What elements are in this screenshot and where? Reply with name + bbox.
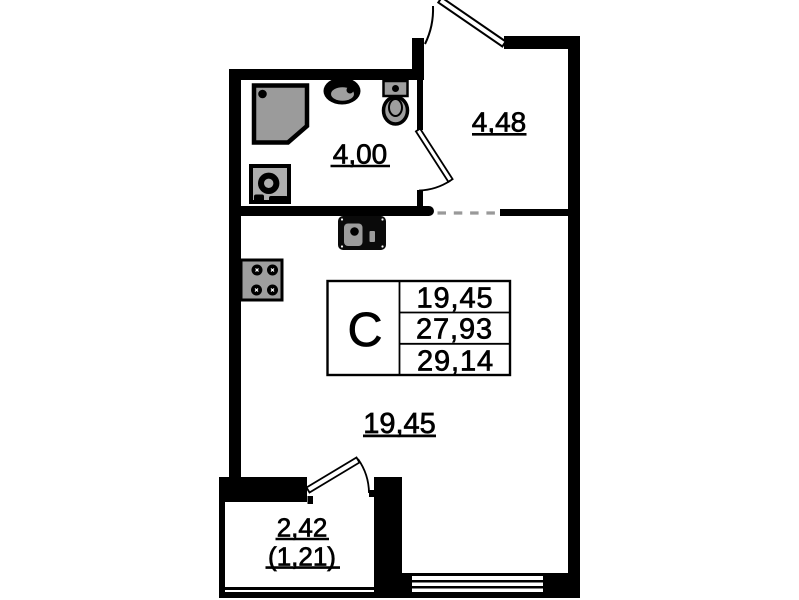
svg-text:19,45: 19,45 [416,283,493,315]
svg-text:C: C [347,303,382,357]
svg-text:4,48: 4,48 [472,107,527,138]
svg-text:27,93: 27,93 [416,313,493,345]
svg-text:29,14: 29,14 [417,345,494,377]
